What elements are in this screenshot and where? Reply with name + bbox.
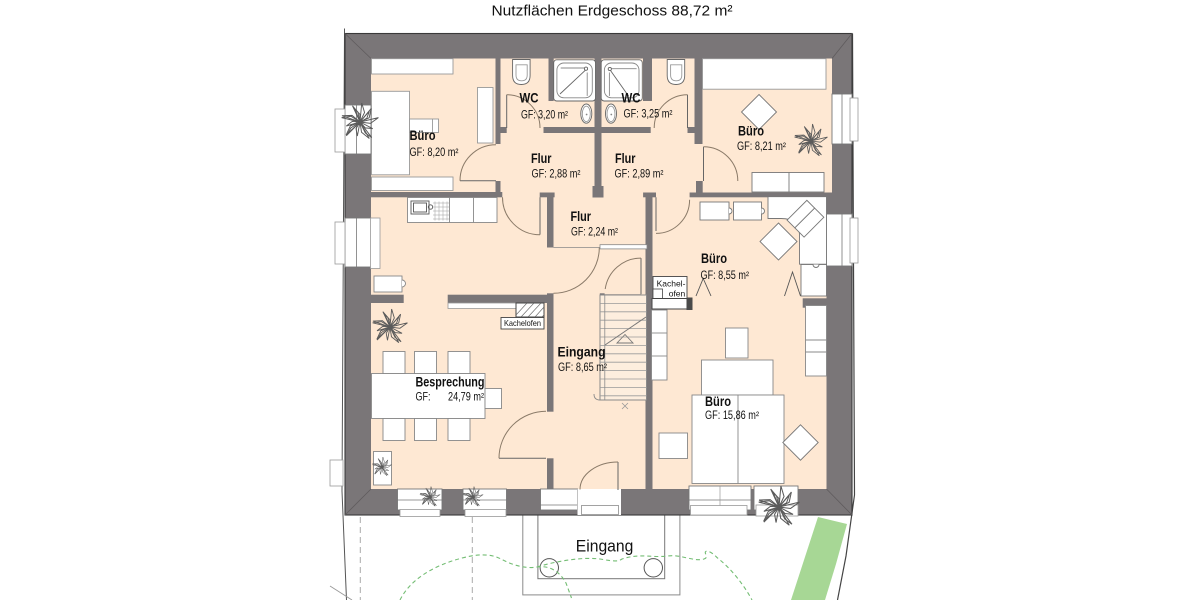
- svg-text:GF: 8,20 m²: GF: 8,20 m²: [410, 147, 459, 159]
- svg-text:GF: 2,89 m²: GF: 2,89 m²: [615, 169, 664, 181]
- svg-text:24,79 m²: 24,79 m²: [448, 392, 484, 404]
- svg-text:Eingang: Eingang: [576, 538, 634, 556]
- svg-text:GF: 15,86 m²: GF: 15,86 m²: [705, 410, 759, 422]
- svg-text:Kachel-: Kachel-: [657, 279, 686, 289]
- svg-text:Kachelofen: Kachelofen: [504, 318, 541, 328]
- svg-text:GF: 8,55 m²: GF: 8,55 m²: [701, 270, 750, 282]
- svg-text:Flur: Flur: [615, 151, 636, 166]
- svg-text:Besprechung: Besprechung: [416, 375, 485, 390]
- svg-text:Büro: Büro: [410, 128, 436, 143]
- svg-text:GF: 2,88 m²: GF: 2,88 m²: [532, 169, 581, 181]
- svg-text:GF:: GF:: [416, 392, 431, 404]
- svg-text:GF: 3,25 m²: GF: 3,25 m²: [624, 109, 673, 121]
- svg-text:WC: WC: [520, 91, 539, 106]
- svg-text:GF: 3,20 m²: GF: 3,20 m²: [521, 110, 568, 122]
- svg-text:ofen: ofen: [669, 289, 686, 299]
- svg-text:Büro: Büro: [738, 124, 764, 139]
- svg-text:GF: 8,21 m²: GF: 8,21 m²: [737, 141, 786, 153]
- svg-text:Eingang: Eingang: [558, 345, 606, 360]
- svg-text:GF: 8,65 m²: GF: 8,65 m²: [558, 362, 607, 374]
- svg-text:WC: WC: [622, 91, 641, 106]
- svg-text:Büro: Büro: [705, 394, 731, 409]
- svg-text:Nutzflächen Erdgeschoss 88,72: Nutzflächen Erdgeschoss 88,72 m²: [492, 3, 733, 20]
- svg-text:Büro: Büro: [701, 251, 727, 266]
- svg-text:GF: 2,24 m²: GF: 2,24 m²: [571, 227, 618, 239]
- svg-text:Flur: Flur: [531, 151, 552, 166]
- svg-text:Flur: Flur: [571, 209, 592, 224]
